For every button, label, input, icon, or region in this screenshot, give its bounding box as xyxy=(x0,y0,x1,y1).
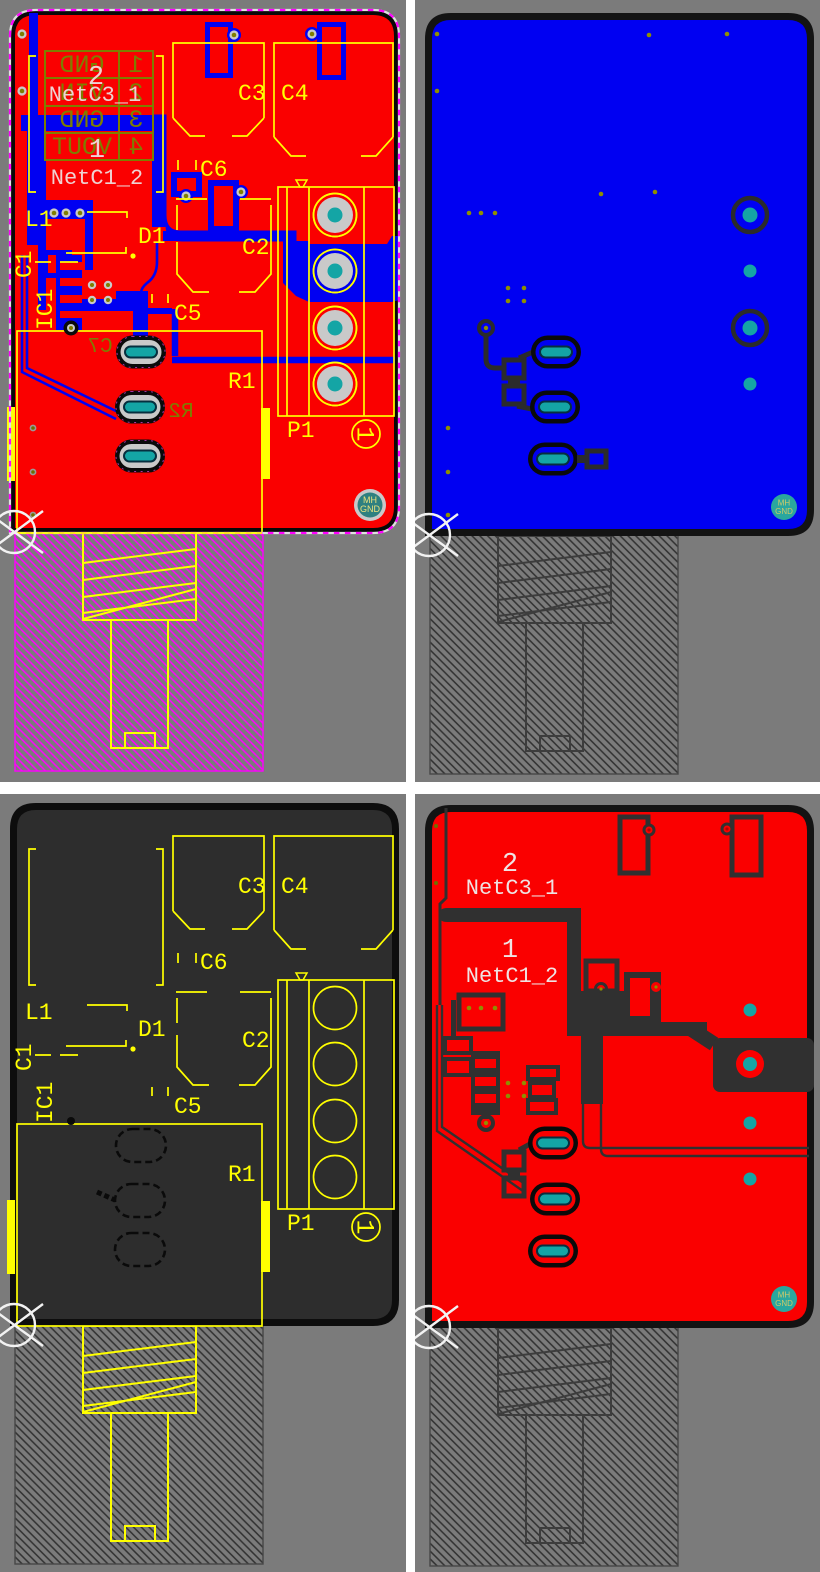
svg-text:C1: C1 xyxy=(12,1043,38,1071)
svg-text:R2: R2 xyxy=(168,401,193,424)
svg-text:NetC3_1: NetC3_1 xyxy=(466,876,558,901)
svg-text:R1: R1 xyxy=(228,369,256,395)
svg-text:GND: GND xyxy=(360,504,381,514)
svg-text:R1: R1 xyxy=(228,1162,256,1188)
svg-text:1: 1 xyxy=(128,51,143,80)
svg-text:C2: C2 xyxy=(242,235,270,261)
svg-text:C7: C7 xyxy=(87,336,112,359)
svg-text:D1: D1 xyxy=(138,224,166,250)
svg-text:IC1: IC1 xyxy=(33,289,59,330)
svg-text:C5: C5 xyxy=(174,301,202,327)
svg-text:NetC1_2: NetC1_2 xyxy=(51,166,143,191)
svg-text:C6: C6 xyxy=(200,950,228,976)
svg-text:1: 1 xyxy=(350,426,379,441)
svg-text:NetC3_1: NetC3_1 xyxy=(49,83,141,108)
svg-text:C4: C4 xyxy=(281,874,309,900)
svg-text:C5: C5 xyxy=(174,1094,202,1120)
svg-text:C1: C1 xyxy=(12,250,38,278)
svg-text:4: 4 xyxy=(128,133,143,162)
svg-text:P1: P1 xyxy=(287,418,315,444)
svg-text:C6: C6 xyxy=(200,157,228,183)
svg-text:L1: L1 xyxy=(25,1000,53,1026)
svg-text:D1: D1 xyxy=(138,1017,166,1043)
svg-text:P1: P1 xyxy=(287,1211,315,1237)
svg-text:C2: C2 xyxy=(242,1028,270,1054)
svg-text:L1: L1 xyxy=(25,207,53,233)
svg-text:GND: GND xyxy=(775,507,793,516)
svg-text:1: 1 xyxy=(89,136,105,166)
svg-text:NetC1_2: NetC1_2 xyxy=(466,964,558,989)
svg-text:3: 3 xyxy=(128,106,143,135)
svg-text:C4: C4 xyxy=(281,81,309,107)
svg-text:C3: C3 xyxy=(238,81,266,107)
svg-text:1: 1 xyxy=(502,936,518,966)
svg-text:GND: GND xyxy=(59,106,104,135)
svg-text:IC1: IC1 xyxy=(33,1082,59,1123)
svg-text:1: 1 xyxy=(350,1219,379,1234)
svg-text:GND: GND xyxy=(775,1299,793,1308)
svg-text:C3: C3 xyxy=(238,874,266,900)
